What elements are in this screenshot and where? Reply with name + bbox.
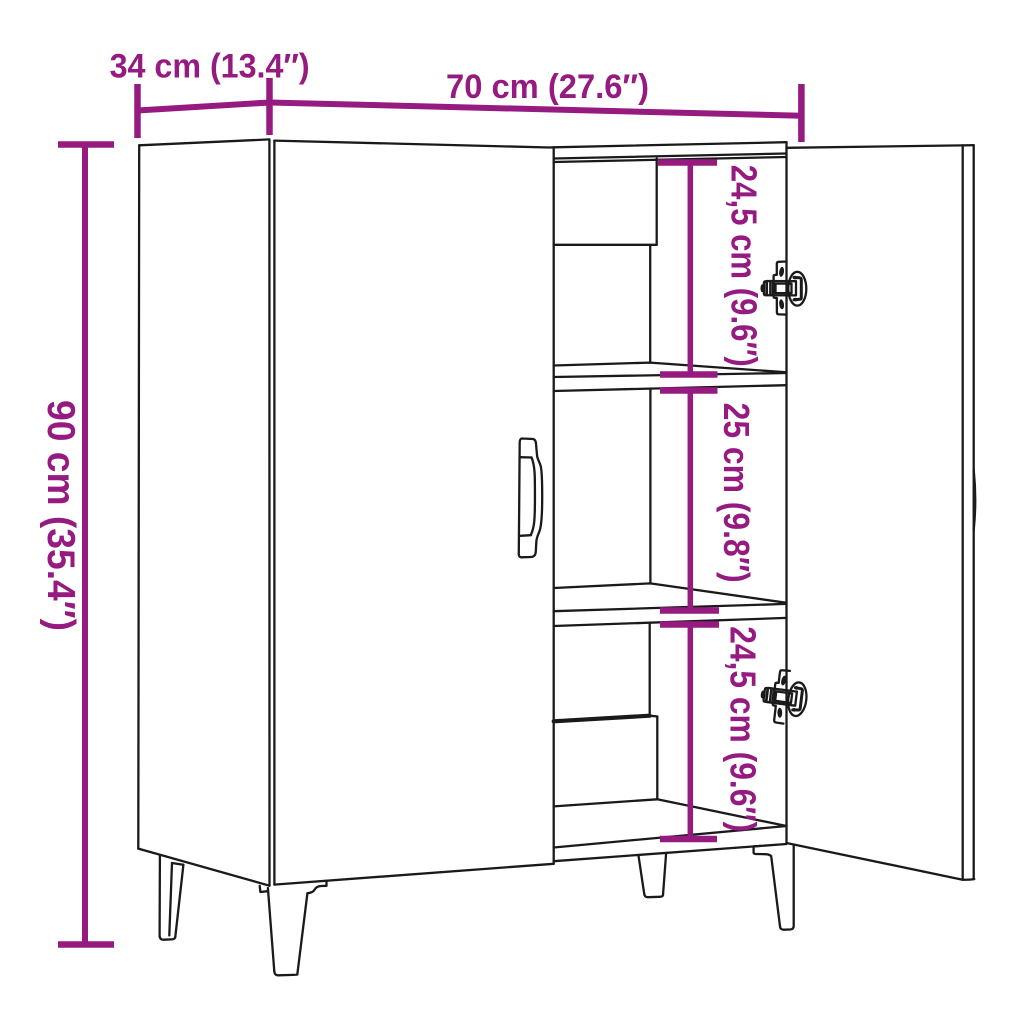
svg-text:24,5 cm (9.6″): 24,5 cm (9.6″): [724, 165, 765, 367]
svg-text:90 cm (35.4″): 90 cm (35.4″): [39, 400, 82, 631]
svg-text:24,5 cm (9.6″): 24,5 cm (9.6″): [723, 626, 764, 832]
svg-text:25 cm (9.8″): 25 cm (9.8″): [716, 403, 757, 583]
svg-text:34 cm (13.4″): 34 cm (13.4″): [110, 48, 310, 86]
svg-text:70 cm (27.6″): 70 cm (27.6″): [446, 68, 649, 106]
